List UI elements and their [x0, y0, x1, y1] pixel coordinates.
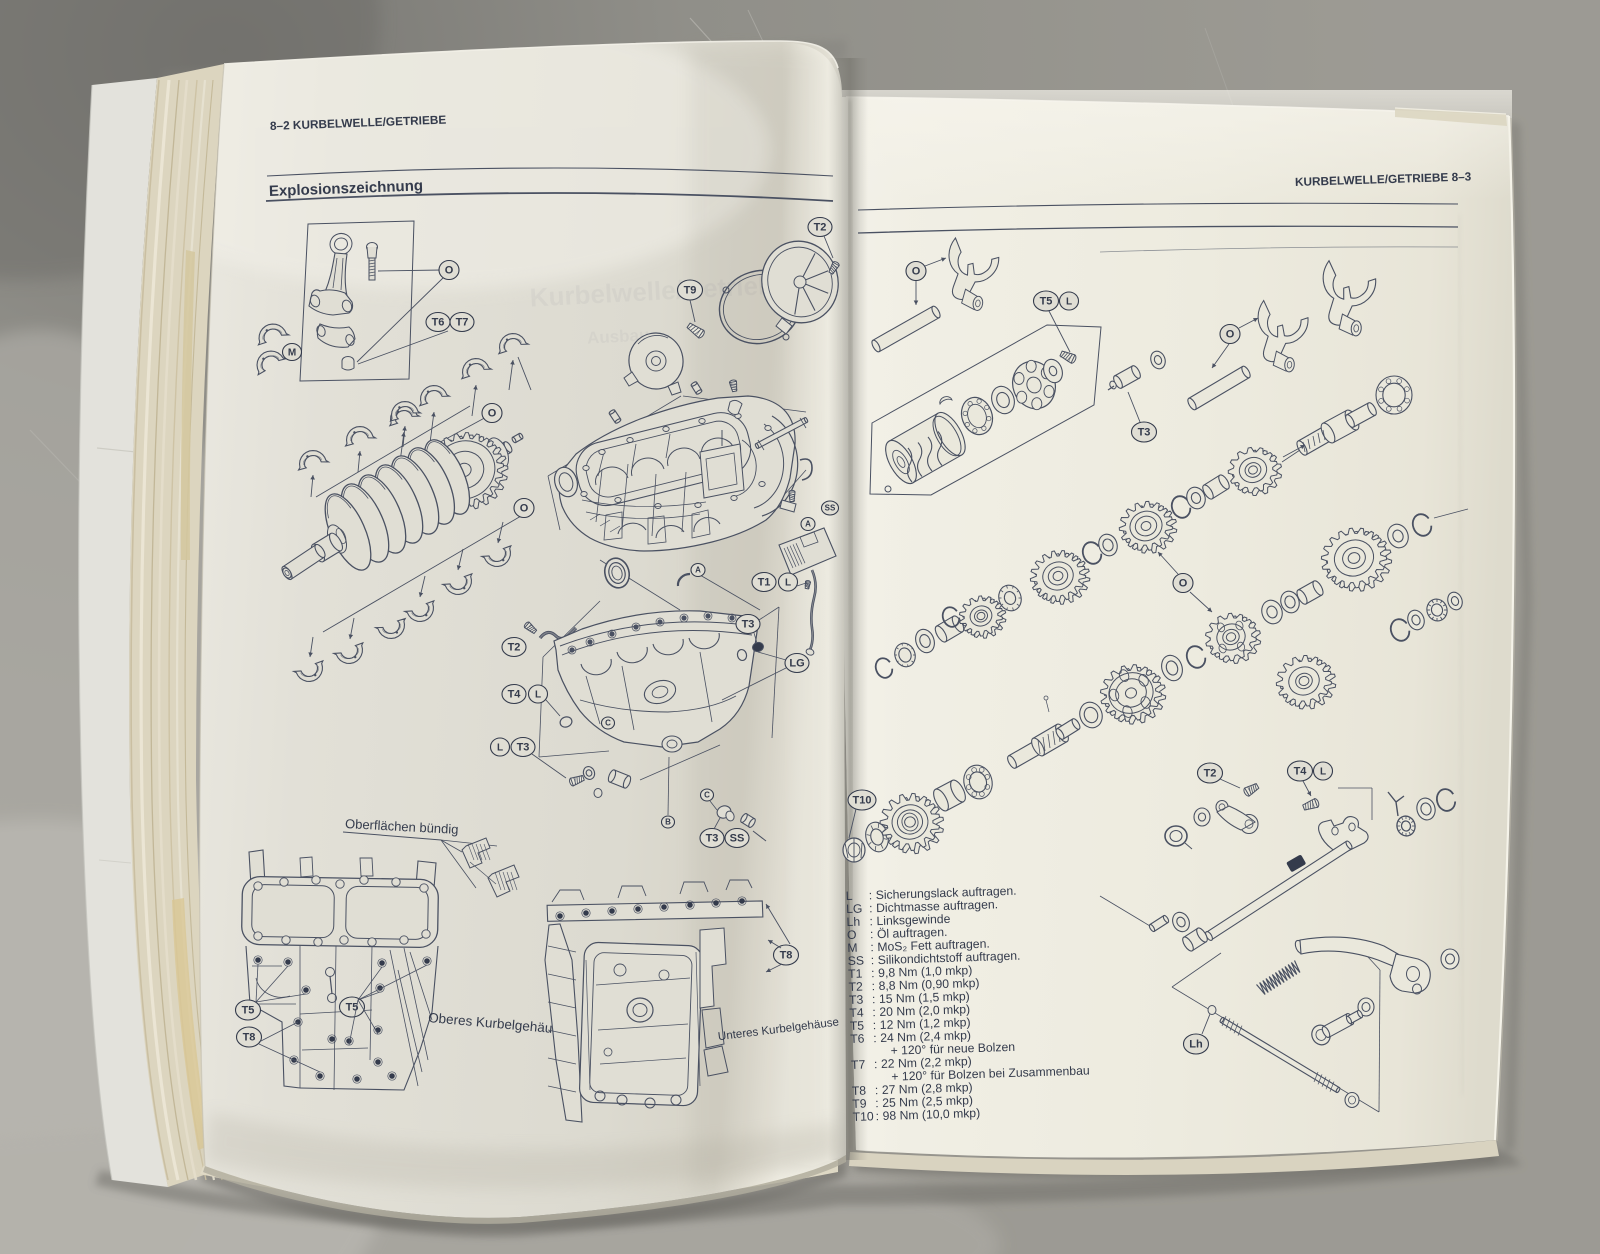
svg-text:T3: T3 — [1138, 427, 1151, 439]
svg-text:T7: T7 — [456, 317, 469, 329]
svg-text:L: L — [1066, 296, 1072, 307]
svg-text:O: O — [445, 265, 454, 277]
svg-text:T1: T1 — [758, 577, 771, 589]
svg-text:L: L — [1320, 766, 1326, 777]
svg-text:T8: T8 — [780, 950, 793, 962]
svg-text:LG: LG — [789, 658, 804, 670]
svg-text:T10: T10 — [853, 795, 872, 807]
svg-text::: : — [875, 1083, 879, 1097]
svg-text::: : — [874, 1057, 878, 1071]
svg-text:C: C — [605, 719, 611, 728]
svg-text::: : — [871, 979, 875, 993]
svg-text::: : — [873, 1018, 877, 1032]
svg-text:T3: T3 — [706, 833, 719, 845]
svg-text:A: A — [805, 520, 811, 529]
svg-text::: : — [871, 966, 875, 980]
svg-text:T2: T2 — [814, 222, 827, 234]
svg-text:T9: T9 — [684, 285, 697, 297]
svg-text::: : — [875, 1096, 879, 1110]
svg-text:T4: T4 — [1294, 766, 1308, 778]
svg-text:T7: T7 — [851, 1058, 866, 1072]
svg-text::: : — [870, 927, 874, 941]
svg-text:T2: T2 — [508, 642, 521, 654]
svg-text:T10: T10 — [852, 1109, 874, 1124]
svg-text:O: O — [1226, 329, 1235, 341]
svg-text::: : — [871, 953, 875, 967]
svg-text:O: O — [520, 503, 529, 515]
svg-text:T2: T2 — [1204, 768, 1217, 780]
svg-text:O: O — [912, 266, 921, 278]
svg-text:M: M — [288, 347, 296, 358]
svg-text:A: A — [695, 566, 701, 575]
svg-text::: : — [870, 940, 874, 954]
svg-text:O: O — [488, 408, 497, 420]
svg-text:B: B — [665, 818, 671, 827]
svg-text:T3: T3 — [517, 742, 530, 754]
svg-text::: : — [869, 914, 873, 928]
svg-text:T8: T8 — [243, 1032, 256, 1044]
svg-text:T6: T6 — [432, 317, 445, 329]
svg-text:L: L — [497, 742, 503, 753]
svg-text::: : — [869, 888, 873, 902]
svg-text:Lh: Lh — [1189, 1039, 1203, 1051]
svg-text::: : — [872, 992, 876, 1006]
svg-text::: : — [873, 1031, 877, 1045]
svg-text:T6: T6 — [850, 1032, 865, 1046]
svg-text:L: L — [785, 577, 791, 588]
svg-text:T4: T4 — [508, 689, 522, 701]
svg-text:L: L — [535, 689, 541, 700]
svg-text:T5: T5 — [1040, 296, 1053, 308]
svg-text:T5: T5 — [242, 1005, 255, 1017]
svg-text::: : — [875, 1109, 879, 1123]
svg-text:C: C — [704, 791, 710, 800]
svg-text::: : — [869, 901, 873, 915]
svg-text:T3: T3 — [742, 619, 755, 631]
svg-text:SS: SS — [730, 833, 745, 845]
svg-text:SS: SS — [825, 504, 836, 513]
svg-text::: : — [872, 1005, 876, 1019]
svg-text:O: O — [1179, 578, 1188, 590]
